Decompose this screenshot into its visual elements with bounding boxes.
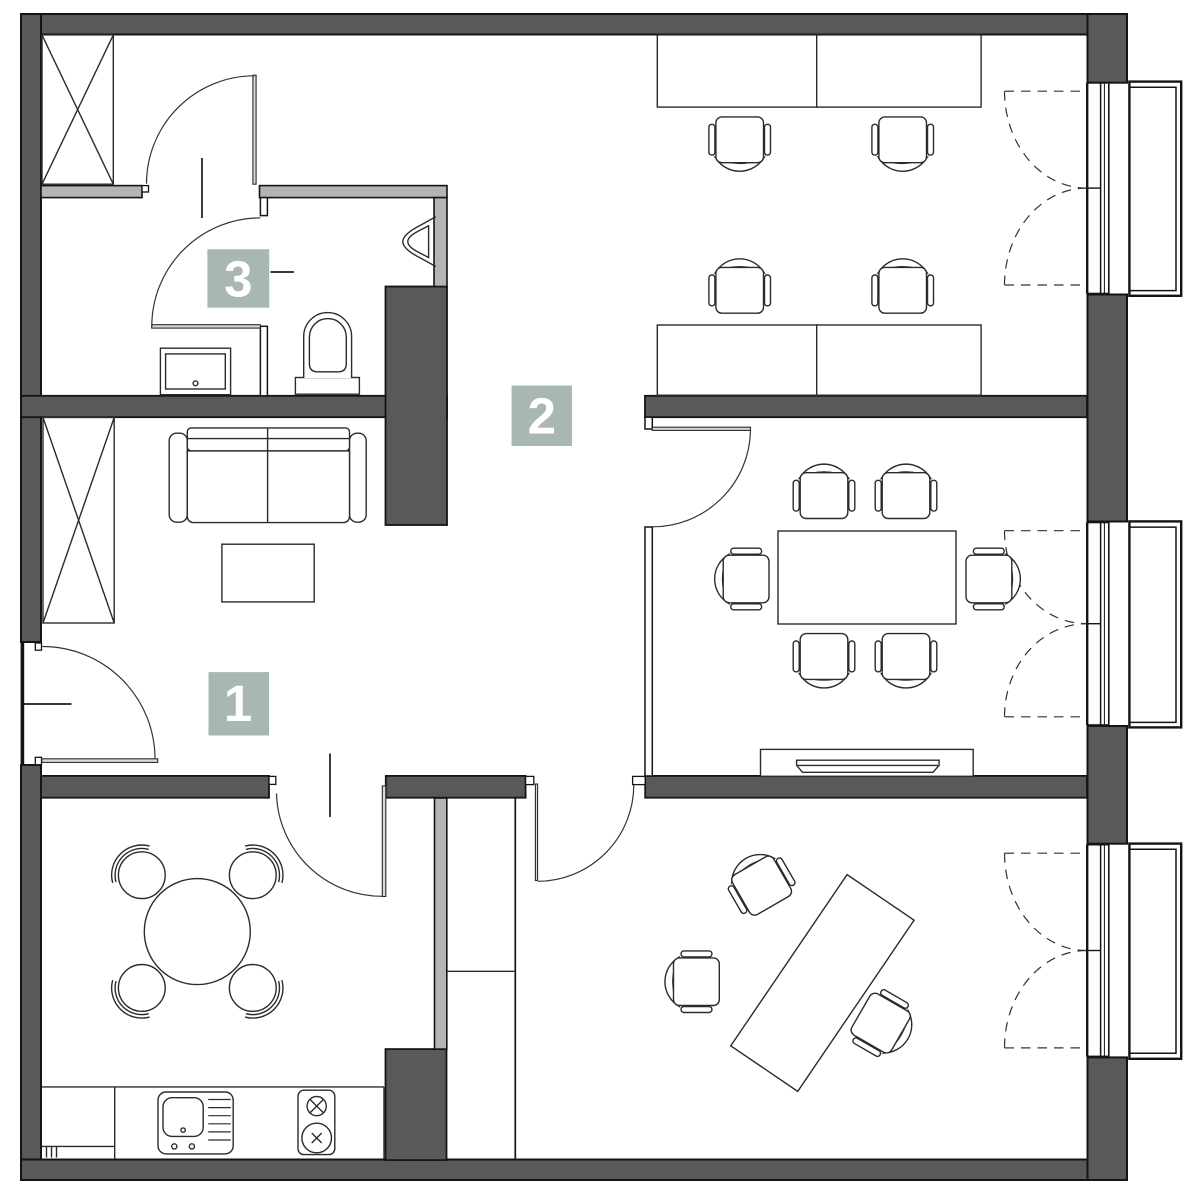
svg-text:3: 3 <box>224 251 252 308</box>
svg-text:2: 2 <box>528 388 556 445</box>
svg-text:1: 1 <box>224 675 252 732</box>
